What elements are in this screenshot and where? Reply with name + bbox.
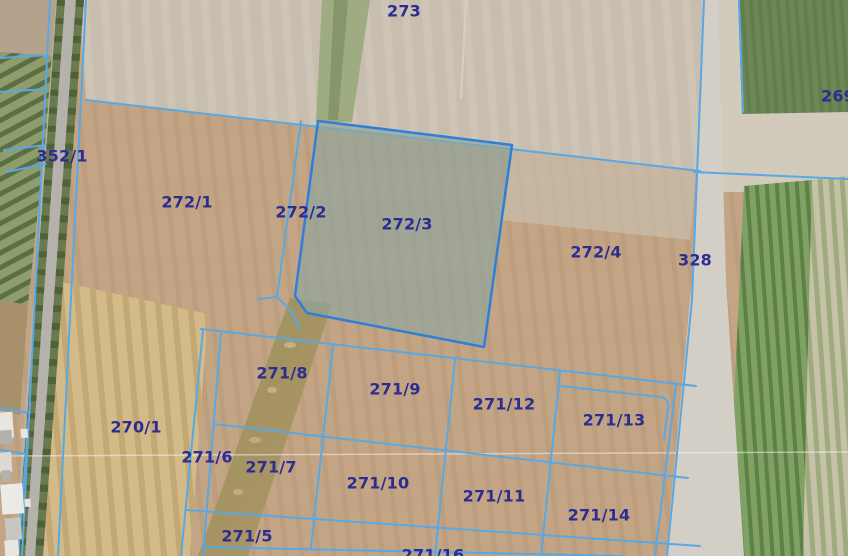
- field-269[interactable]: [738, 0, 848, 114]
- parcel-272-3-selected[interactable]: [295, 121, 512, 347]
- map-canvas[interactable]: 273 269 352/1 272/1 272/2 272/3 272/4 32…: [0, 0, 848, 556]
- aerial-imagery: [0, 0, 848, 556]
